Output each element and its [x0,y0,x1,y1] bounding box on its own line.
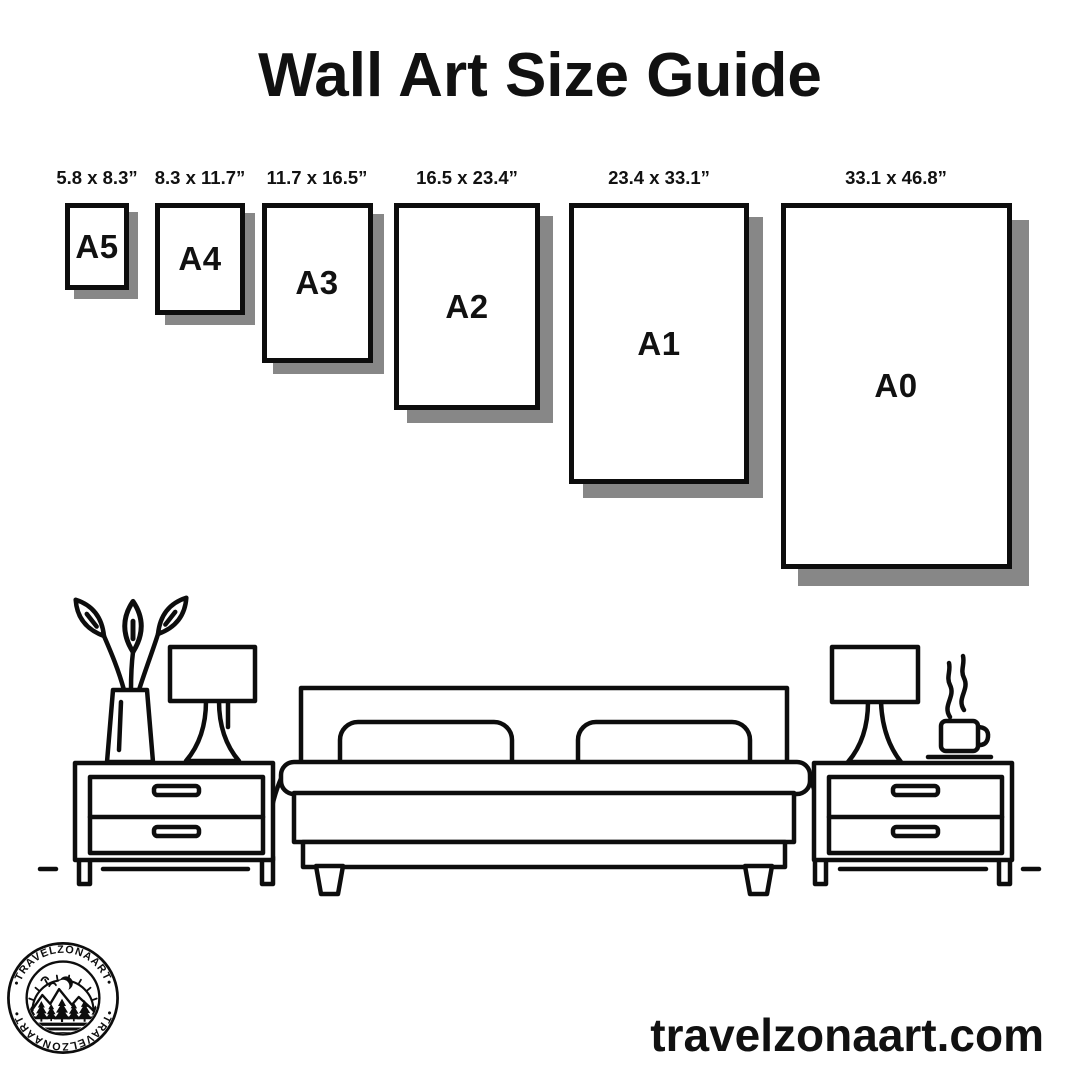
nightstand-right-icon [814,763,1012,884]
drawer-handle [154,827,199,836]
logo-badge: •TRAVELZONAART• •TRAVELZONAART• [4,939,122,1057]
bed-leg-right [745,866,772,894]
lamp-base [186,701,239,761]
bed-leg-left [316,866,343,894]
cup-body [941,721,978,751]
lamp-shade [170,647,255,701]
drawer-handle [154,786,199,795]
table-lamp-left-icon [170,647,255,761]
bedroom-scene-illustration [0,0,1080,1080]
bed-icon [266,688,826,894]
coffee-cup-icon [928,721,991,757]
lamp-base [848,702,901,762]
vase [107,690,153,762]
website-url: travelzonaart.com [650,1008,1044,1062]
drawer-handle [893,827,938,836]
bed-base [303,842,785,867]
table-lamp-right-icon [832,647,918,762]
steam-icon [947,656,965,717]
lamp-shade [832,647,918,702]
drawer-handle [893,786,938,795]
nightstand-left-icon [75,763,273,884]
mattress [294,793,794,842]
sheet-top [281,762,810,794]
